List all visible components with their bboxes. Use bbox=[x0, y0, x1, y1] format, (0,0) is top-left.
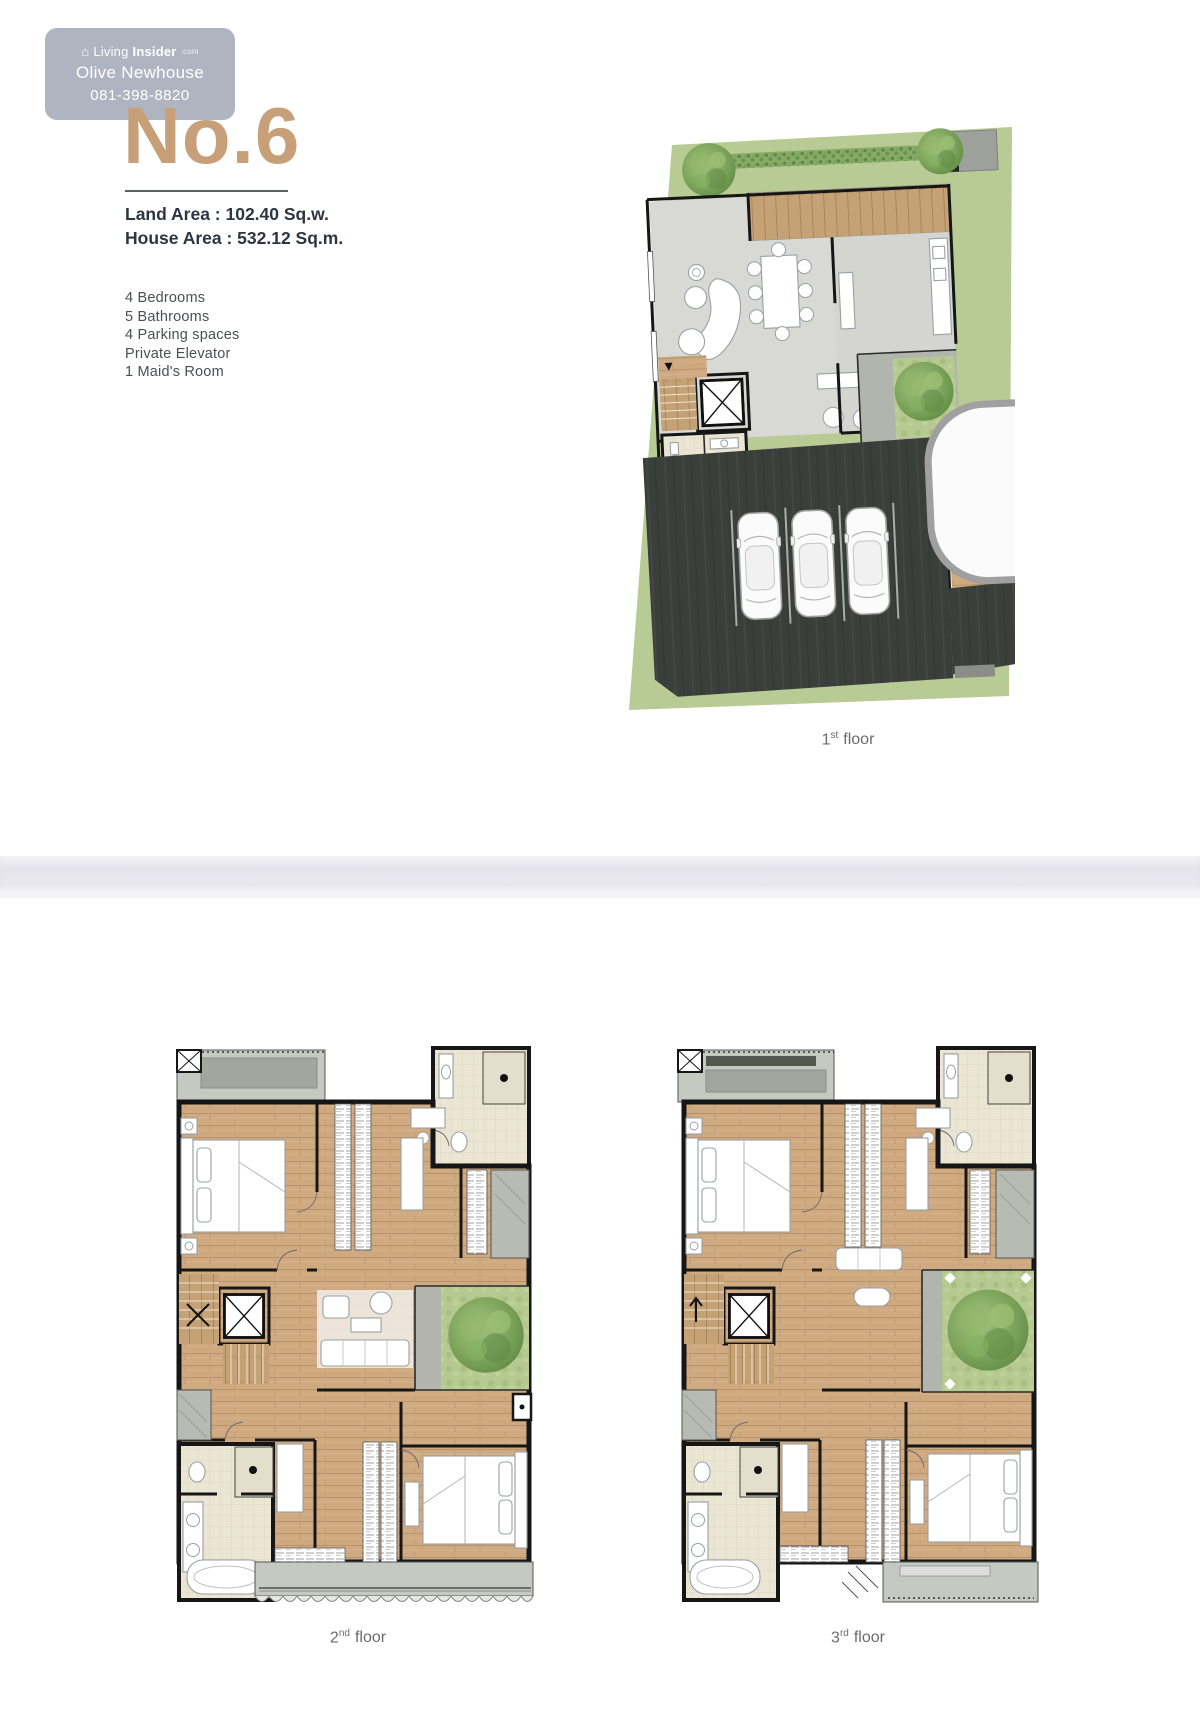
feature-bedrooms: 4 Bedrooms bbox=[125, 289, 239, 308]
bed bbox=[405, 1452, 527, 1548]
third-floor-plan bbox=[670, 1042, 1050, 1614]
floorplan-sheet: ⌂ LivingInsider.com Olive Newhouse 081-3… bbox=[0, 0, 1200, 1730]
heading-divider bbox=[125, 190, 288, 192]
closet bbox=[467, 1170, 487, 1254]
stair-landing bbox=[658, 355, 707, 379]
sofa-set bbox=[317, 1290, 413, 1368]
land-area: Land Area : 102.40 Sq.w. bbox=[125, 202, 343, 226]
feature-maid-room: 1 Maid's Room bbox=[125, 363, 239, 382]
wardrobe bbox=[845, 1104, 861, 1247]
balcony bbox=[883, 1562, 1038, 1602]
master-bathroom bbox=[684, 1444, 778, 1600]
agent-name: Olive Newhouse bbox=[45, 63, 235, 83]
toilet-icon bbox=[956, 1132, 972, 1152]
bathroom bbox=[433, 1048, 529, 1166]
cabinet bbox=[277, 1444, 303, 1512]
balcony bbox=[177, 1050, 325, 1102]
elevator-icon bbox=[701, 379, 744, 426]
shower-drain-icon bbox=[1005, 1074, 1013, 1082]
balcony bbox=[678, 1050, 834, 1102]
desk bbox=[916, 1108, 950, 1128]
toilet-icon bbox=[451, 1132, 467, 1152]
first-floor-label: 1stfloor bbox=[760, 730, 936, 749]
service-ledge bbox=[996, 1170, 1034, 1258]
bathtub-icon bbox=[690, 1560, 760, 1594]
stairs bbox=[179, 1274, 219, 1344]
car-icon bbox=[842, 507, 893, 615]
wardrobe bbox=[381, 1442, 397, 1564]
second-floor-plan bbox=[165, 1042, 545, 1614]
desk bbox=[411, 1108, 445, 1128]
courtyard-paving bbox=[415, 1286, 441, 1390]
wardrobe bbox=[335, 1104, 351, 1250]
wardrobe bbox=[363, 1442, 379, 1564]
page-break-band bbox=[0, 856, 1200, 898]
feature-bathrooms: 5 Bathrooms bbox=[125, 308, 239, 327]
feature-list: 4 Bedrooms 5 Bathrooms 4 Parking spaces … bbox=[125, 289, 239, 382]
wardrobe bbox=[780, 1546, 848, 1562]
dresser bbox=[906, 1138, 928, 1210]
service-ledge bbox=[491, 1170, 529, 1258]
second-floor-label: 2ndfloor bbox=[270, 1628, 446, 1647]
stairs bbox=[684, 1274, 724, 1344]
feature-elevator: Private Elevator bbox=[125, 345, 239, 364]
wardrobe bbox=[355, 1104, 371, 1250]
toilet-icon bbox=[189, 1462, 205, 1482]
feature-parking: 4 Parking spaces bbox=[125, 326, 239, 345]
gate bbox=[955, 664, 996, 678]
living-insider-logo: ⌂ LivingInsider.com bbox=[45, 44, 235, 59]
bathtub-icon bbox=[187, 1560, 265, 1594]
area-specs: Land Area : 102.40 Sq.w. House Area : 53… bbox=[125, 202, 343, 250]
cabinet bbox=[782, 1444, 808, 1512]
brand-prefix: Living bbox=[93, 44, 128, 59]
bathroom bbox=[938, 1048, 1034, 1166]
balcony bbox=[255, 1562, 533, 1602]
bed bbox=[910, 1450, 1032, 1546]
first-floor-plan bbox=[605, 124, 1015, 716]
unit-number-heading: No.6 bbox=[123, 96, 300, 176]
wardrobe bbox=[865, 1104, 881, 1247]
house-area: House Area : 532.12 Sq.m. bbox=[125, 226, 343, 250]
car-icon bbox=[734, 512, 785, 620]
dresser bbox=[401, 1138, 423, 1210]
brand-tld: .com bbox=[181, 47, 199, 56]
tree-icon bbox=[948, 1290, 1029, 1371]
house-logo-icon: ⌂ bbox=[81, 45, 89, 58]
closet bbox=[970, 1170, 990, 1254]
brand-suffix: Insider bbox=[133, 44, 177, 59]
shower-drain-icon bbox=[500, 1074, 508, 1082]
tree-icon bbox=[448, 1297, 523, 1372]
toilet-icon bbox=[694, 1462, 710, 1482]
courtyard-paving bbox=[922, 1270, 942, 1392]
wardrobe bbox=[866, 1440, 882, 1562]
elevator-icon bbox=[224, 1295, 263, 1338]
car-icon bbox=[788, 509, 839, 617]
steps bbox=[842, 1566, 878, 1598]
wardrobe bbox=[884, 1440, 900, 1562]
elevator-icon bbox=[729, 1295, 768, 1338]
third-floor-label: 3rdfloor bbox=[770, 1628, 946, 1647]
